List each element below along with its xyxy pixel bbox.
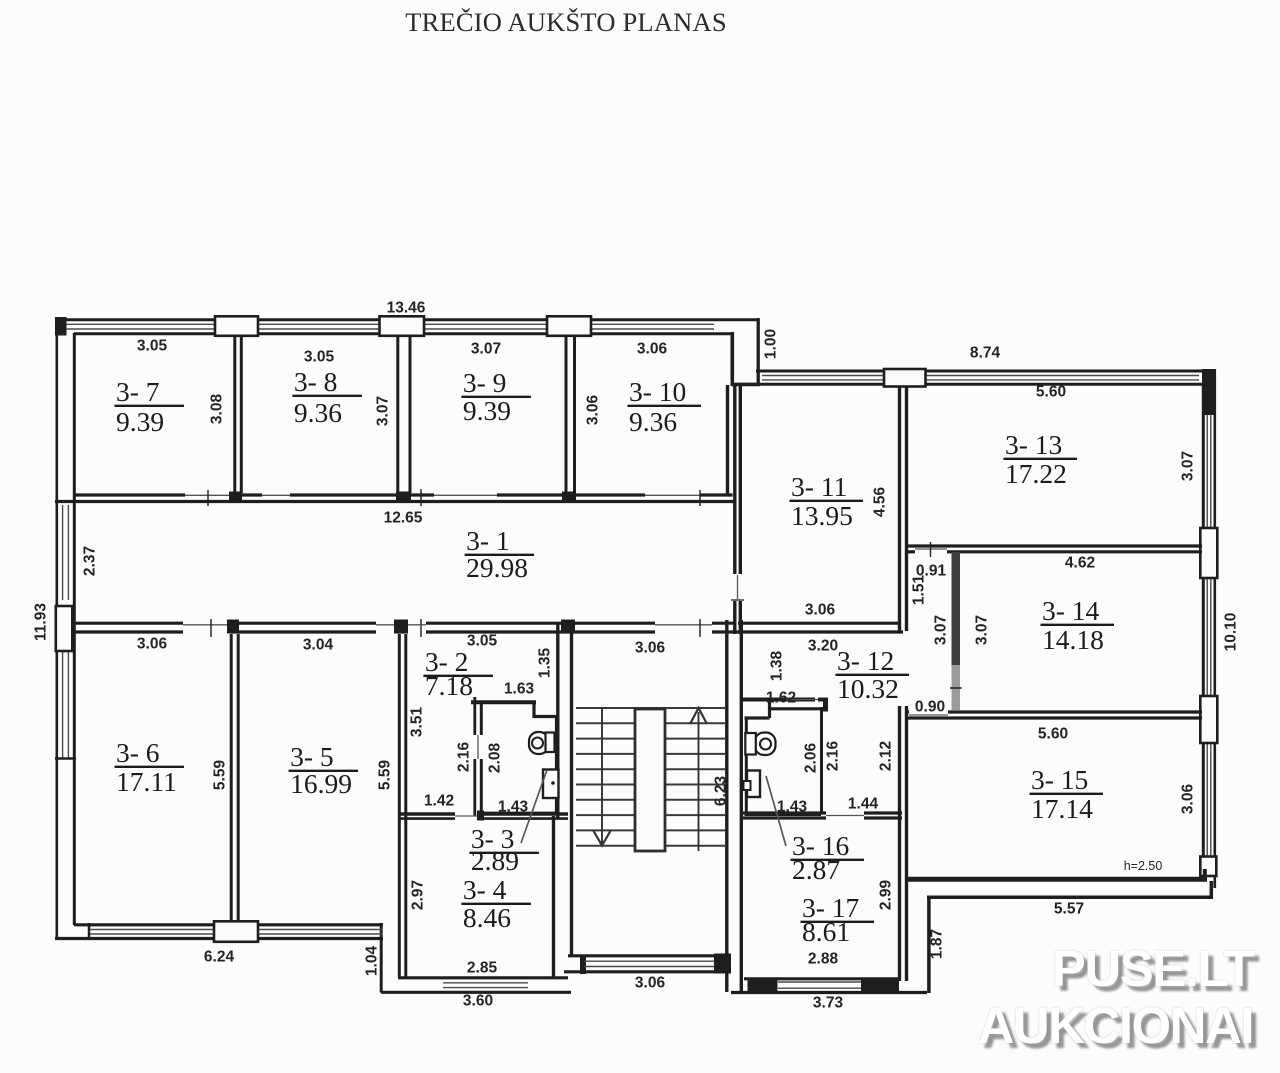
svg-text:1.43: 1.43	[498, 798, 529, 815]
svg-text:2.87: 2.87	[792, 854, 840, 885]
svg-text:4.62: 4.62	[1065, 554, 1095, 571]
svg-text:6.23: 6.23	[712, 776, 729, 807]
svg-text:4.56: 4.56	[871, 487, 888, 518]
svg-text:3- 11: 3- 11	[791, 471, 847, 502]
svg-text:3- 4: 3- 4	[463, 874, 507, 905]
svg-text:6.24: 6.24	[204, 948, 235, 965]
svg-text:3- 10: 3- 10	[629, 376, 686, 407]
svg-text:9.39: 9.39	[463, 395, 511, 426]
svg-text:12.65: 12.65	[384, 509, 423, 526]
svg-text:3.06: 3.06	[584, 395, 601, 426]
svg-text:5.60: 5.60	[1038, 725, 1068, 742]
svg-text:0.90: 0.90	[915, 698, 945, 715]
svg-text:11.93: 11.93	[32, 603, 49, 641]
svg-text:3- 8: 3- 8	[294, 366, 338, 397]
svg-text:10.32: 10.32	[837, 673, 899, 704]
svg-text:3- 6: 3- 6	[116, 737, 160, 768]
svg-text:1.04: 1.04	[363, 946, 380, 977]
svg-text:2.06: 2.06	[802, 743, 819, 774]
svg-text:3.06: 3.06	[635, 974, 666, 991]
svg-text:2.12: 2.12	[877, 741, 894, 771]
svg-text:5.60: 5.60	[1036, 383, 1066, 400]
svg-text:1.63: 1.63	[504, 680, 535, 697]
svg-text:1.43: 1.43	[777, 798, 808, 815]
svg-text:3.06: 3.06	[637, 340, 668, 357]
svg-text:13.46: 13.46	[387, 299, 426, 316]
svg-text:3.05: 3.05	[137, 337, 168, 354]
svg-text:17.14: 17.14	[1031, 793, 1093, 824]
svg-text:1.44: 1.44	[848, 795, 879, 812]
svg-text:2.16: 2.16	[455, 742, 472, 773]
svg-text:3.07: 3.07	[471, 340, 501, 357]
svg-text:9.39: 9.39	[116, 406, 164, 437]
svg-text:TREČIO AUKŠTO PLANAS: TREČIO AUKŠTO PLANAS	[405, 7, 727, 37]
svg-text:7.18: 7.18	[425, 670, 473, 701]
svg-text:1.51: 1.51	[910, 575, 927, 606]
svg-text:17.11: 17.11	[116, 766, 177, 797]
svg-text:3.05: 3.05	[304, 348, 335, 365]
svg-text:14.18: 14.18	[1042, 624, 1104, 655]
svg-text:3.07: 3.07	[374, 396, 391, 426]
svg-text:3.07: 3.07	[1179, 451, 1196, 481]
svg-text:16.99: 16.99	[290, 768, 352, 799]
svg-text:3- 9: 3- 9	[463, 367, 507, 398]
svg-text:3.05: 3.05	[467, 632, 498, 649]
svg-text:13.95: 13.95	[791, 500, 853, 531]
svg-text:3.51: 3.51	[408, 707, 425, 738]
svg-text:2.16: 2.16	[824, 741, 841, 772]
svg-text:3- 7: 3- 7	[116, 376, 160, 407]
svg-text:8.46: 8.46	[463, 902, 511, 933]
svg-text:1.00: 1.00	[762, 329, 779, 359]
svg-text:3.04: 3.04	[303, 636, 334, 653]
svg-text:3.07: 3.07	[932, 615, 949, 645]
svg-text:h=2.50: h=2.50	[1124, 859, 1163, 873]
svg-text:3.20: 3.20	[808, 637, 838, 654]
svg-text:3.73: 3.73	[813, 994, 844, 1011]
svg-text:2.99: 2.99	[877, 880, 894, 911]
svg-text:2.37: 2.37	[81, 546, 98, 576]
svg-text:3.06: 3.06	[635, 639, 666, 656]
svg-text:1.62: 1.62	[766, 689, 796, 706]
svg-text:8.74: 8.74	[970, 344, 1001, 361]
svg-text:1.38: 1.38	[768, 651, 785, 682]
svg-text:9.36: 9.36	[294, 397, 342, 428]
svg-text:3.60: 3.60	[463, 992, 493, 1009]
svg-text:3- 12: 3- 12	[837, 645, 894, 676]
svg-text:1.42: 1.42	[424, 792, 454, 809]
svg-text:1.87: 1.87	[928, 929, 945, 959]
svg-text:2.88: 2.88	[808, 950, 839, 967]
svg-text:3- 13: 3- 13	[1005, 429, 1062, 460]
svg-text:2.85: 2.85	[467, 959, 498, 976]
svg-text:5.59: 5.59	[376, 760, 393, 791]
svg-text:17.22: 17.22	[1005, 458, 1067, 489]
svg-text:2.08: 2.08	[486, 743, 503, 774]
svg-text:3.06: 3.06	[805, 601, 836, 618]
svg-text:3- 14: 3- 14	[1042, 595, 1100, 626]
svg-text:3.06: 3.06	[137, 635, 168, 652]
svg-text:29.98: 29.98	[466, 552, 528, 583]
svg-text:2.89: 2.89	[471, 845, 519, 876]
svg-text:8.61: 8.61	[802, 916, 850, 947]
svg-text:5.59: 5.59	[211, 760, 228, 791]
svg-text:1.35: 1.35	[536, 648, 553, 679]
svg-text:3.07: 3.07	[973, 615, 990, 645]
svg-text:3.08: 3.08	[208, 394, 225, 425]
svg-text:10.10: 10.10	[1222, 613, 1239, 652]
svg-text:2.97: 2.97	[409, 880, 426, 910]
svg-text:9.36: 9.36	[629, 406, 677, 437]
svg-text:3.06: 3.06	[1179, 784, 1196, 815]
svg-text:5.57: 5.57	[1054, 900, 1084, 917]
svg-text:3- 15: 3- 15	[1031, 764, 1088, 795]
